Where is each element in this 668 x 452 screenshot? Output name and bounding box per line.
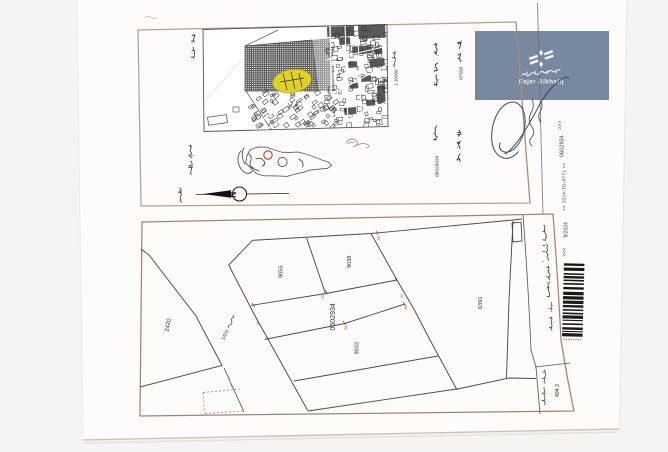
svg-text:15: 15 — [321, 295, 325, 299]
svg-text:30: 30 — [404, 306, 408, 310]
svg-text:9038: 9038 — [347, 256, 353, 268]
svg-text:9/2024: 9/2024 — [564, 222, 570, 238]
svg-text:>>>: >>> — [558, 121, 564, 130]
svg-text:06029034: 06029034 — [435, 155, 441, 177]
svg-text:50: 50 — [377, 236, 381, 240]
svg-text:44: 44 — [400, 294, 404, 298]
svg-text:32: 32 — [344, 326, 348, 330]
svg-text:9033: 9033 — [355, 342, 361, 354]
svg-text:1:10000: 1:10000 — [394, 69, 399, 86]
svg-text:07590: 07590 — [459, 66, 465, 80]
svg-text:N: N — [228, 192, 238, 198]
svg-text:0602934: 0602934 — [330, 303, 337, 330]
svg-text:6391: 6391 — [478, 297, 484, 309]
svg-text:44: 44 — [256, 321, 260, 325]
svg-text:9055: 9055 — [279, 266, 285, 278]
svg-text:494.2: 494.2 — [555, 384, 561, 397]
svg-text:>< 2024-TD-0771 ><: >< 2024-TD-0771 >< — [562, 162, 567, 211]
svg-text:0602934: 0602934 — [560, 135, 566, 157]
svg-text:<<<: <<< — [562, 248, 568, 257]
